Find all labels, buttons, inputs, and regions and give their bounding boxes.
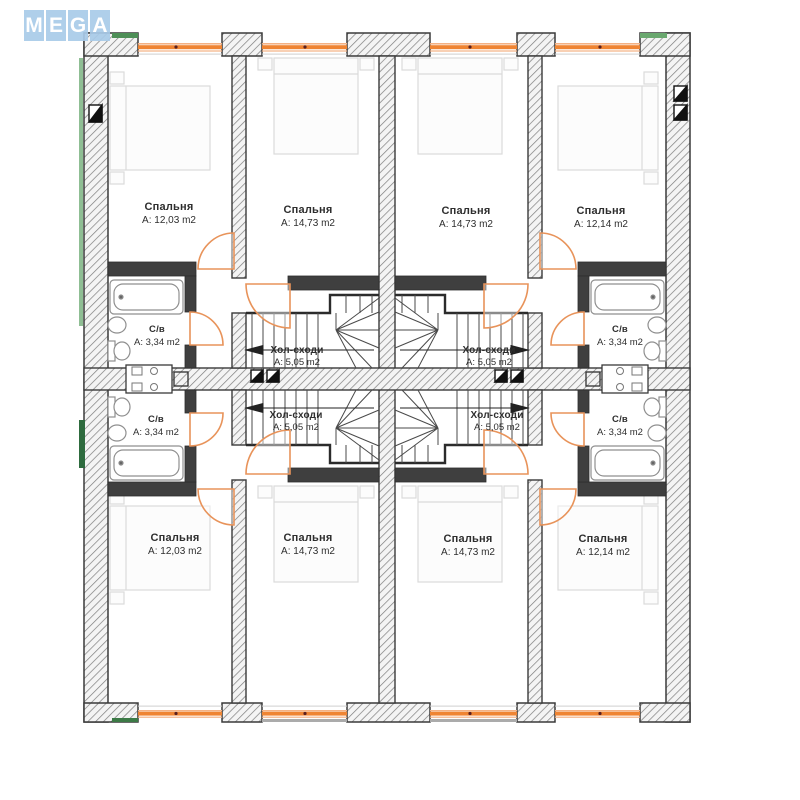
room-name: Спальня bbox=[142, 200, 196, 214]
room-name: С/в bbox=[597, 324, 643, 336]
room-area: А: 12,03 m2 bbox=[148, 545, 202, 558]
vent-icon bbox=[251, 370, 263, 382]
room-area: А: 5,05 m2 bbox=[269, 422, 322, 434]
room-name: С/в bbox=[134, 324, 180, 336]
room-area: А: 14,73 m2 bbox=[281, 545, 335, 558]
mega-logo: M E G A bbox=[24, 10, 110, 41]
toilet-sink-bottom-left bbox=[108, 397, 130, 441]
room-area: А: 12,14 m2 bbox=[574, 218, 628, 231]
vent-icon bbox=[89, 105, 102, 122]
bathroom-label: С/в А: 3,34 m2 bbox=[597, 324, 643, 349]
room-name: Спальня bbox=[281, 203, 335, 217]
room-name: Спальня bbox=[574, 204, 628, 218]
bathtub-bottom-right bbox=[591, 446, 664, 480]
room-area: А: 5,05 m2 bbox=[270, 357, 323, 369]
bedroom-label: Спальня А: 14,73 m2 bbox=[281, 203, 335, 230]
room-area: А: 12,03 m2 bbox=[142, 214, 196, 227]
floor-plan-drawing bbox=[0, 0, 800, 800]
room-name: С/в bbox=[597, 414, 643, 426]
bedroom-label: Спальня А: 14,73 m2 bbox=[281, 531, 335, 558]
hall-stairs-label: Хол-сходи А: 5,05 m2 bbox=[470, 410, 523, 434]
room-area: А: 3,34 m2 bbox=[597, 336, 643, 349]
room-name: Хол-сходи bbox=[470, 410, 523, 422]
room-area: А: 14,73 m2 bbox=[439, 218, 493, 231]
vent-icon bbox=[674, 86, 687, 101]
bedroom-label: Спальня А: 12,03 m2 bbox=[142, 200, 196, 227]
mega-logo-letter: A bbox=[90, 10, 110, 41]
bedroom-label: Спальня А: 12,14 m2 bbox=[576, 532, 630, 559]
bedroom-label: Спальня А: 12,14 m2 bbox=[574, 204, 628, 231]
vent-icon bbox=[511, 370, 523, 382]
mega-logo-letter: G bbox=[68, 10, 88, 41]
room-area: А: 5,05 m2 bbox=[470, 422, 523, 434]
bathtub-bottom-left bbox=[110, 446, 183, 480]
room-name: Хол-сходи bbox=[269, 410, 322, 422]
bedroom-label: Спальня А: 12,03 m2 bbox=[148, 531, 202, 558]
room-name: Хол-сходи bbox=[462, 345, 515, 357]
bedroom-label: Спальня А: 14,73 m2 bbox=[439, 204, 493, 231]
room-name: Спальня bbox=[281, 531, 335, 545]
floor-plan-page: M E G A Спальня А: 12,03 m2 Спальня А: 1… bbox=[0, 0, 800, 800]
room-area: А: 14,73 m2 bbox=[441, 546, 495, 559]
bathroom-label: С/в А: 3,34 m2 bbox=[133, 414, 179, 439]
bathroom-label: С/в А: 3,34 m2 bbox=[134, 324, 180, 349]
room-area: А: 5,05 m2 bbox=[462, 357, 515, 369]
bathtub-top-left bbox=[110, 280, 183, 314]
mega-logo-letter: M bbox=[24, 10, 44, 41]
bedroom-label: Спальня А: 14,73 m2 bbox=[441, 532, 495, 559]
bathtub-top-right bbox=[591, 280, 664, 314]
toilet-sink-bottom-right bbox=[644, 397, 666, 441]
room-name: Хол-сходи bbox=[270, 345, 323, 357]
vent-icon bbox=[674, 105, 687, 120]
room-area: А: 12,14 m2 bbox=[576, 546, 630, 559]
room-area: А: 3,34 m2 bbox=[597, 426, 643, 439]
hall-stairs-label: Хол-сходи А: 5,05 m2 bbox=[269, 410, 322, 434]
room-area: А: 14,73 m2 bbox=[281, 217, 335, 230]
bathroom-label: С/в А: 3,34 m2 bbox=[597, 414, 643, 439]
vent-icon bbox=[495, 370, 507, 382]
room-name: Спальня bbox=[439, 204, 493, 218]
toilet-sink-top-left bbox=[108, 317, 130, 361]
room-name: Спальня bbox=[148, 531, 202, 545]
hall-stairs-label: Хол-сходи А: 5,05 m2 bbox=[462, 345, 515, 369]
room-name: Спальня bbox=[576, 532, 630, 546]
room-name: Спальня bbox=[441, 532, 495, 546]
toilet-sink-top-right bbox=[644, 317, 666, 361]
hall-stairs-label: Хол-сходи А: 5,05 m2 bbox=[270, 345, 323, 369]
room-area: А: 3,34 m2 bbox=[134, 336, 180, 349]
mega-logo-letter: E bbox=[46, 10, 66, 41]
room-name: С/в bbox=[133, 414, 179, 426]
vent-icon bbox=[267, 370, 279, 382]
room-area: А: 3,34 m2 bbox=[133, 426, 179, 439]
